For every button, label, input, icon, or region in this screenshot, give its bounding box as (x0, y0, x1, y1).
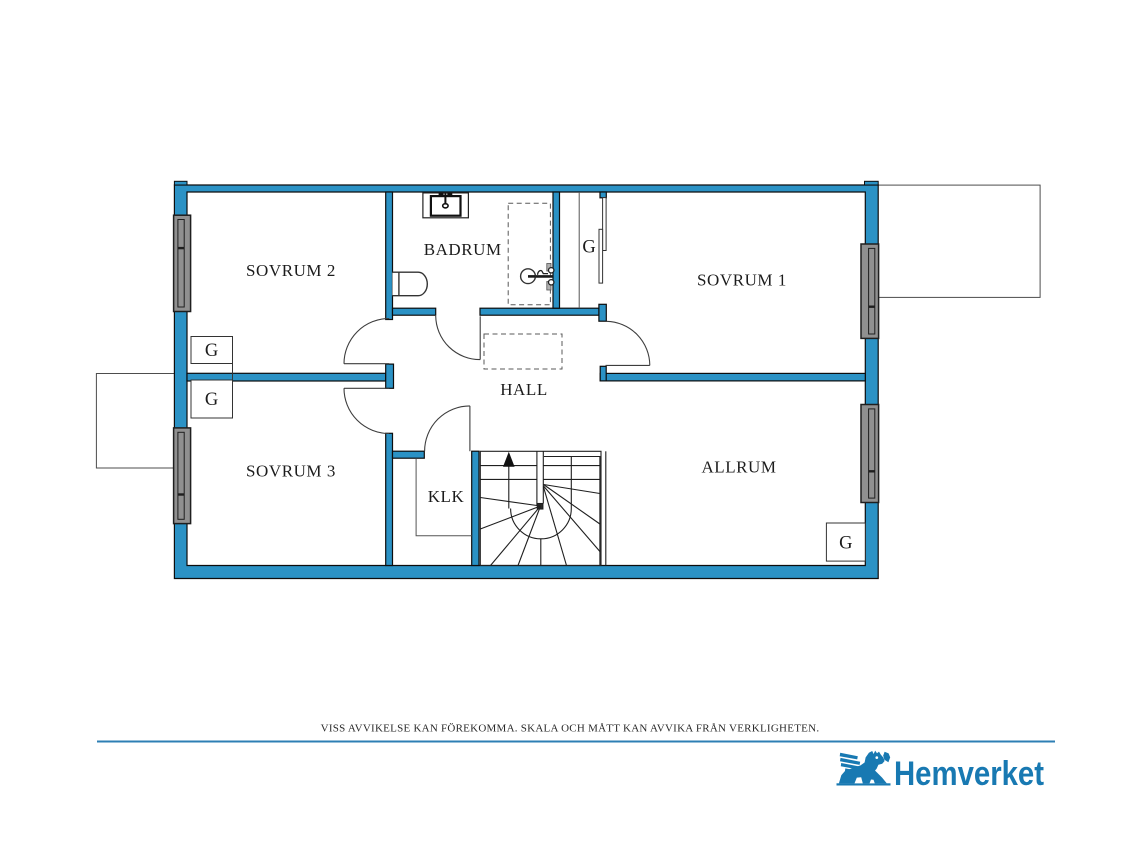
svg-text:ALLRUM: ALLRUM (701, 458, 776, 477)
svg-text:G: G (582, 237, 595, 257)
svg-text:SOVRUM 3: SOVRUM 3 (246, 462, 336, 481)
svg-text:G: G (205, 341, 218, 361)
svg-text:G: G (205, 390, 218, 410)
svg-text:Hemverket: Hemverket (894, 755, 1044, 793)
svg-text:BADRUM: BADRUM (424, 240, 502, 259)
svg-text:G: G (839, 534, 852, 554)
svg-text:SOVRUM 1: SOVRUM 1 (697, 271, 787, 290)
svg-text:KLK: KLK (428, 487, 465, 506)
svg-text:HALL: HALL (500, 380, 548, 399)
svg-text:VISS AVVIKELSE KAN FÖREKOMMA.: VISS AVVIKELSE KAN FÖREKOMMA. SKALA OCH … (321, 723, 820, 735)
svg-text:SOVRUM 2: SOVRUM 2 (246, 261, 336, 280)
